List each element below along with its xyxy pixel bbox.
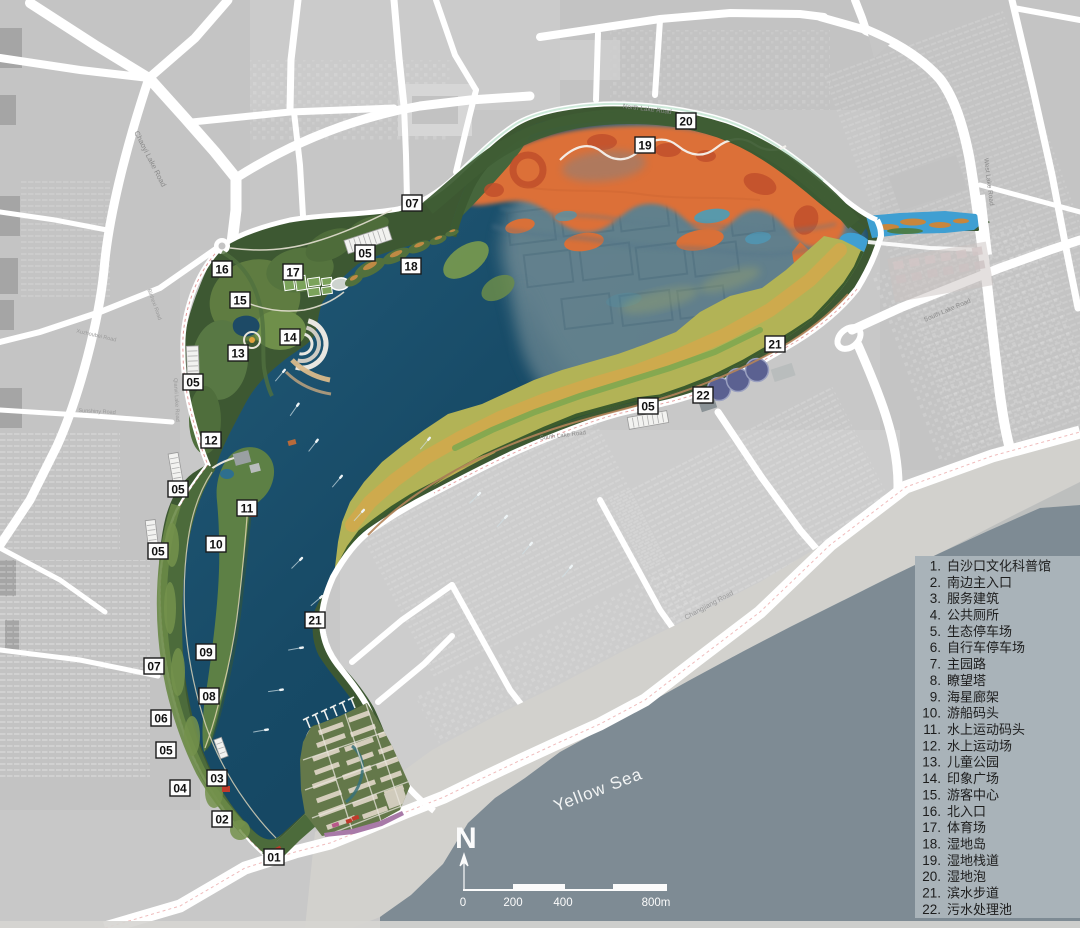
- svg-text:8.: 8.: [930, 673, 941, 688]
- svg-text:12.: 12.: [922, 738, 941, 753]
- svg-text:10: 10: [209, 538, 223, 552]
- svg-text:生态停车场: 生态停车场: [947, 624, 1012, 639]
- svg-text:游船码头: 游船码头: [947, 706, 999, 721]
- svg-text:02: 02: [215, 813, 229, 827]
- svg-text:15.: 15.: [922, 787, 941, 802]
- svg-text:08: 08: [202, 690, 216, 704]
- svg-text:05: 05: [171, 483, 185, 497]
- svg-text:13: 13: [231, 347, 245, 361]
- svg-text:3.: 3.: [930, 591, 941, 606]
- svg-text:03: 03: [210, 772, 224, 786]
- svg-text:05: 05: [151, 545, 165, 559]
- svg-text:21.: 21.: [922, 886, 941, 901]
- svg-text:14.: 14.: [922, 771, 941, 786]
- svg-text:瞭望塔: 瞭望塔: [947, 673, 986, 688]
- svg-text:22.: 22.: [922, 902, 941, 917]
- svg-text:20: 20: [679, 115, 693, 129]
- svg-text:水上运动场: 水上运动场: [947, 738, 1012, 753]
- svg-text:服务建筑: 服务建筑: [947, 591, 999, 606]
- svg-text:06: 06: [154, 712, 168, 726]
- svg-text:18.: 18.: [922, 837, 941, 852]
- svg-text:01: 01: [267, 851, 281, 865]
- svg-text:22: 22: [696, 389, 710, 403]
- svg-text:13.: 13.: [922, 755, 941, 770]
- svg-text:20.: 20.: [922, 869, 941, 884]
- svg-text:6.: 6.: [930, 640, 941, 655]
- svg-text:7.: 7.: [930, 657, 941, 672]
- svg-text:14: 14: [283, 331, 297, 345]
- svg-text:12: 12: [204, 434, 218, 448]
- svg-text:17.: 17.: [922, 820, 941, 835]
- svg-text:湿地泡: 湿地泡: [947, 869, 986, 884]
- svg-text:16: 16: [215, 263, 229, 277]
- svg-text:自行车停车场: 自行车停车场: [947, 640, 1025, 655]
- svg-text:07: 07: [147, 660, 161, 674]
- svg-text:05: 05: [358, 247, 372, 261]
- svg-text:18: 18: [404, 260, 418, 274]
- svg-text:07: 07: [405, 197, 419, 211]
- svg-text:南边主入口: 南边主入口: [947, 575, 1012, 590]
- svg-text:湿地岛: 湿地岛: [947, 837, 986, 852]
- svg-text:16.: 16.: [922, 804, 941, 819]
- svg-text:白沙口文化科普馆: 白沙口文化科普馆: [947, 559, 1051, 574]
- svg-text:17: 17: [286, 266, 300, 280]
- svg-text:10.: 10.: [922, 706, 941, 721]
- svg-text:5.: 5.: [930, 624, 941, 639]
- svg-text:800m: 800m: [642, 897, 671, 909]
- svg-text:北入口: 北入口: [947, 804, 986, 819]
- svg-text:儿童公园: 儿童公园: [947, 755, 999, 770]
- svg-text:水上运动码头: 水上运动码头: [947, 722, 1025, 737]
- svg-text:21: 21: [308, 614, 322, 628]
- svg-text:体育场: 体育场: [947, 820, 986, 835]
- svg-text:游客中心: 游客中心: [947, 787, 999, 802]
- svg-text:19.: 19.: [922, 853, 941, 868]
- svg-text:400: 400: [553, 897, 572, 909]
- svg-text:N: N: [455, 822, 477, 855]
- svg-text:05: 05: [159, 744, 173, 758]
- svg-text:11: 11: [241, 502, 254, 516]
- svg-text:19: 19: [638, 139, 652, 153]
- svg-text:05: 05: [641, 400, 655, 414]
- svg-text:滨水步道: 滨水步道: [947, 886, 999, 901]
- svg-text:21: 21: [768, 338, 782, 352]
- svg-text:海星廊架: 海星廊架: [947, 689, 999, 704]
- svg-text:主园路: 主园路: [947, 657, 986, 672]
- svg-text:9.: 9.: [930, 689, 941, 704]
- svg-text:05: 05: [186, 376, 200, 390]
- svg-text:4.: 4.: [930, 608, 941, 623]
- svg-text:200: 200: [503, 897, 522, 909]
- svg-text:污水处理池: 污水处理池: [947, 902, 1012, 917]
- svg-text:印象广场: 印象广场: [947, 771, 999, 786]
- svg-text:2.: 2.: [930, 575, 941, 590]
- svg-text:1.: 1.: [930, 559, 941, 574]
- svg-text:09: 09: [199, 646, 213, 660]
- svg-text:04: 04: [173, 782, 187, 796]
- svg-text:11.: 11.: [923, 722, 941, 737]
- svg-text:湿地栈道: 湿地栈道: [947, 853, 999, 868]
- svg-text:15: 15: [233, 294, 247, 308]
- svg-text:0: 0: [460, 897, 466, 909]
- svg-text:公共厕所: 公共厕所: [947, 608, 999, 623]
